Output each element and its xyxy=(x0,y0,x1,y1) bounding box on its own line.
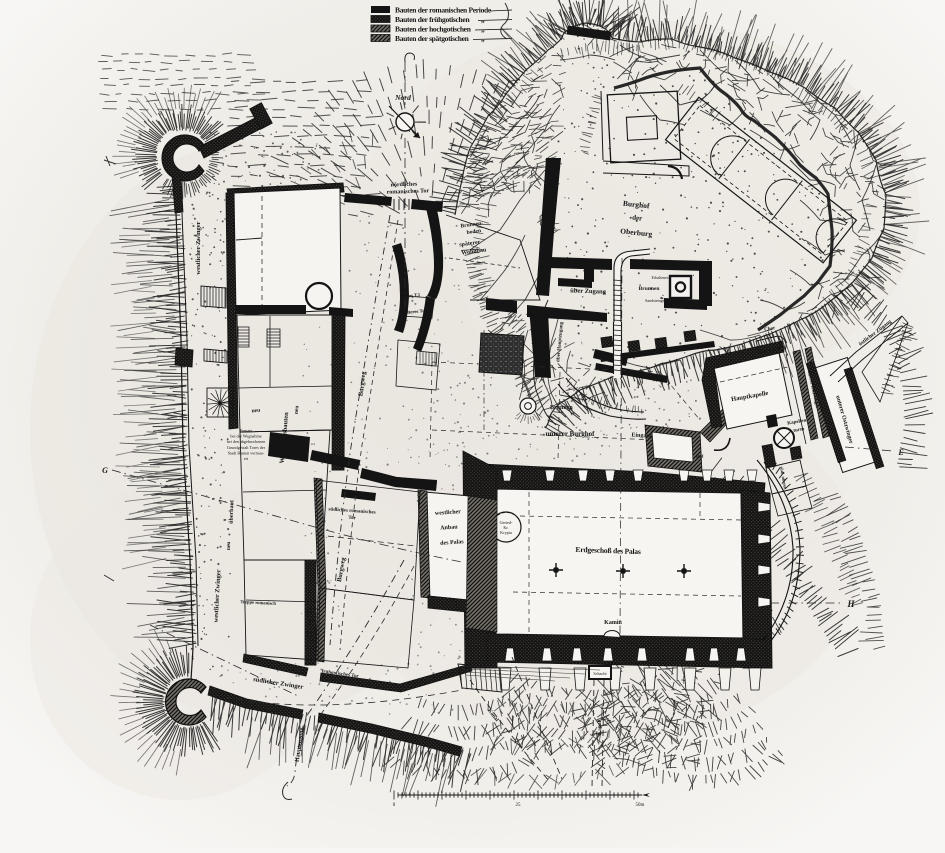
svg-text:überbaut: überbaut xyxy=(229,500,236,524)
svg-text:E: E xyxy=(897,448,903,457)
svg-text:25: 25 xyxy=(516,803,522,808)
svg-text:„: „ xyxy=(481,25,485,34)
svg-text:Tor: Tor xyxy=(348,516,357,522)
svg-text:neu: neu xyxy=(251,408,260,415)
svg-text:Krypta: Krypta xyxy=(500,530,512,535)
svg-text:Stadt Bauten vermau-: Stadt Bauten vermau- xyxy=(228,450,265,455)
svg-text:westlicher Zwinger: westlicher Zwinger xyxy=(195,221,202,274)
svg-text:Anbau: Anbau xyxy=(440,524,458,531)
svg-text:Nord: Nord xyxy=(394,93,411,102)
svg-text:der: der xyxy=(632,214,643,223)
svg-text:Eingang: Eingang xyxy=(631,432,653,439)
svg-text:„: „ xyxy=(481,15,485,24)
svg-text:neu: neu xyxy=(294,405,301,414)
svg-text:Bauten der spätgotischen: Bauten der spätgotischen xyxy=(395,34,470,43)
svg-text:Grundgestalt Tores der: Grundgestalt Tores der xyxy=(227,445,266,450)
svg-text:Brunnen: Brunnen xyxy=(550,405,573,411)
svg-text:nördliches: nördliches xyxy=(391,182,419,189)
svg-text:Bauten der romanischen Periode: Bauten der romanischen Periode xyxy=(395,6,492,15)
svg-text:Kamin: Kamin xyxy=(604,620,622,626)
svg-text:Kanal: Kanal xyxy=(597,720,603,735)
svg-text:H: H xyxy=(846,599,855,609)
svg-text:Schacht: Schacht xyxy=(593,671,607,676)
svg-text:neu: neu xyxy=(226,542,232,551)
svg-text:Bauten der hochgotischen: Bauten der hochgotischen xyxy=(395,25,472,34)
svg-text:unterer Burghof: unterer Burghof xyxy=(546,430,596,438)
svg-text:G: G xyxy=(102,466,108,475)
svg-text:bei den abgebrochenen: bei den abgebrochenen xyxy=(227,439,267,444)
svg-text:Brunnen: Brunnen xyxy=(639,286,660,292)
svg-text:unten: unten xyxy=(702,276,711,281)
svg-text:Steg: Steg xyxy=(702,284,709,289)
svg-text:Fenster: Fenster xyxy=(240,428,253,433)
svg-text:über Zugang: über Zugang xyxy=(570,287,607,295)
svg-text:Hof: Hof xyxy=(696,453,704,459)
svg-text:50m: 50m xyxy=(636,803,645,808)
svg-text:bei der Wegnahme: bei der Wegnahme xyxy=(230,434,261,439)
svg-text:Sandsteingewände: Sandsteingewände xyxy=(645,298,675,303)
svg-text:„: „ xyxy=(481,34,485,43)
svg-text:vorm: vorm xyxy=(702,292,711,297)
svg-text:Erhaltenes: Erhaltenes xyxy=(652,275,669,280)
svg-text:3: 3 xyxy=(607,720,613,723)
svg-text:Bauten der frühgotischen: Bauten der frühgotischen xyxy=(395,15,470,24)
